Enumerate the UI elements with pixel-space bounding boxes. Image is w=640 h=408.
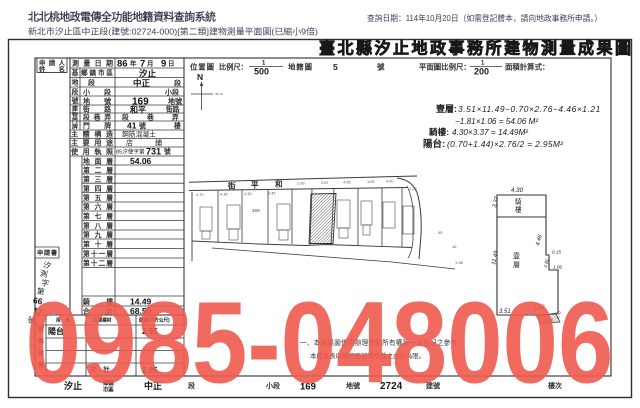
svg-text:基: 基 — [72, 68, 79, 77]
svg-text:日: 日 — [168, 60, 175, 68]
svg-text:壹: 壹 — [513, 251, 520, 260]
svg-text:街路: 街路 — [166, 105, 180, 114]
svg-text:年: 年 — [130, 59, 137, 68]
svg-text:樓: 樓 — [174, 121, 181, 130]
svg-text:86: 86 — [117, 59, 128, 70]
svg-text:第五層: 第五層 — [83, 193, 113, 202]
svg-text:鄉鎮市區: 鄉鎮市區 — [81, 68, 113, 77]
svg-text:731: 731 — [146, 147, 161, 157]
svg-text:(0.70+1.44)×2.76/2 = 2.95M²: (0.70+1.44)×2.76/2 = 2.95M² — [447, 139, 564, 149]
svg-text:中正: 中正 — [133, 78, 151, 88]
svg-text:地籍圖: 地籍圖 — [288, 63, 312, 72]
svg-text:段: 段 — [72, 87, 79, 96]
svg-text:54.06: 54.06 — [130, 156, 152, 166]
svg-text:地號: 地號 — [168, 97, 182, 106]
svg-text:弄: 弄 — [172, 114, 179, 122]
svg-text:段巷弄: 段巷弄 — [83, 113, 111, 122]
svg-text:169: 169 — [252, 208, 260, 213]
svg-text:4.30: 4.30 — [244, 191, 252, 196]
svg-text:9: 9 — [161, 59, 166, 70]
svg-text:比例尺：: 比例尺： — [219, 63, 248, 72]
svg-text:第二層: 第二層 — [83, 165, 113, 174]
svg-text:2.67: 2.67 — [321, 180, 329, 185]
svg-text:北北桃地政電傳全功能地籍資料查詢系統: 北北桃地政電傳全功能地籍資料查詢系統 — [28, 10, 216, 24]
svg-text:45: 45 — [438, 230, 443, 235]
svg-text:層: 層 — [513, 261, 520, 269]
svg-text:4.00: 4.00 — [386, 179, 394, 184]
svg-text:號: 號 — [72, 96, 79, 105]
svg-text:新北市汐止區中正段(建號:02724-000)[第二類]建物: 新北市汐止區中正段(建號:02724-000)[第二類]建物測量平面圖(已縮小9… — [28, 26, 318, 37]
svg-text:1.05: 1.05 — [367, 179, 375, 184]
svg-text:4.70: 4.70 — [196, 192, 204, 197]
svg-text:汐止: 汐止 — [139, 69, 157, 79]
svg-text:第八層: 第八層 — [83, 221, 113, 230]
svg-text:16: 16 — [452, 244, 457, 249]
svg-text:店: 店 — [126, 138, 133, 147]
svg-text:4.35: 4.35 — [220, 192, 228, 197]
svg-text:騎: 騎 — [515, 197, 522, 206]
svg-text:4.30: 4.30 — [511, 187, 524, 194]
svg-text:壹層:: 壹層: — [436, 103, 457, 114]
svg-text:第十二層: 第十二層 — [83, 259, 113, 268]
svg-text:查詢日期：114年10月20日（如需登記謄本，請向地政事務所: 查詢日期：114年10月20日（如需登記謄本，請向地政事務所申請。） — [367, 13, 602, 23]
svg-text:第七層: 第七層 — [83, 212, 113, 221]
svg-text:第六層: 第六層 — [83, 202, 113, 211]
svg-text:5: 5 — [333, 62, 338, 72]
svg-text:3.51×11.49−0.70×2.76−4.46×1.21: 3.51×11.49−0.70×2.76−4.46×1.21 — [458, 104, 601, 114]
svg-text:地: 地 — [72, 78, 79, 87]
svg-text:0.15: 0.15 — [552, 250, 561, 255]
svg-text:第十一層: 第十一層 — [83, 249, 113, 258]
svg-text:N: N — [197, 72, 203, 82]
svg-text:巷: 巷 — [147, 114, 154, 122]
svg-text:陽台:: 陽台: — [423, 138, 445, 150]
svg-text:號: 號 — [164, 147, 171, 156]
svg-text:41: 41 — [127, 121, 137, 131]
svg-text:4.05: 4.05 — [343, 180, 351, 185]
svg-text:物: 物 — [72, 111, 78, 119]
svg-text:樓: 樓 — [515, 205, 522, 214]
svg-text:位置圖: 位置圖 — [190, 63, 214, 72]
svg-text:500: 500 — [254, 67, 269, 77]
svg-text:申請人: 申請人 — [39, 58, 66, 67]
svg-text:鋼筋混凝土: 鋼筋混凝土 — [122, 130, 156, 139]
svg-text:−1.81×1.06 = 54.06 M²: −1.81×1.06 = 54.06 M² — [455, 117, 538, 126]
svg-text:號: 號 — [377, 63, 385, 72]
svg-text:平面圖比例尺：: 平面圖比例尺： — [419, 63, 471, 72]
svg-text:1.98: 1.98 — [455, 260, 464, 265]
svg-text:段: 段 — [174, 79, 181, 88]
svg-text:小段: 小段 — [165, 88, 179, 97]
svg-text:平: 平 — [251, 181, 259, 190]
svg-text:建: 建 — [72, 105, 78, 113]
svg-text:騎樓:: 騎樓: — [429, 126, 449, 137]
svg-text:200: 200 — [474, 67, 489, 77]
svg-text:街: 街 — [228, 181, 236, 191]
svg-text:臺北縣汐止地政事務所建物測量成果圖: 臺北縣汐止地政事務所建物測量成果圖 — [319, 39, 631, 58]
svg-text:0985-048006: 0985-048006 — [26, 278, 614, 408]
svg-text:地面層: 地面層 — [83, 156, 113, 165]
svg-text:4.30×3.37 = 14.49M²: 4.30×3.37 = 14.49M² — [452, 128, 528, 137]
svg-text:姓 名: 姓 名 — [39, 65, 65, 74]
svg-text:牌: 牌 — [72, 123, 78, 131]
svg-text:1.06: 1.06 — [553, 265, 562, 270]
svg-text:第四層: 第四層 — [83, 184, 113, 193]
svg-text:門: 門 — [72, 118, 78, 125]
svg-text:申請書: 申請書 — [37, 249, 57, 257]
svg-text:第三層: 第三層 — [83, 175, 113, 184]
svg-text:和: 和 — [275, 180, 283, 189]
svg-text:第九層: 第九層 — [83, 230, 113, 239]
svg-text:2.09: 2.09 — [297, 181, 305, 186]
svg-text:段: 段 — [88, 78, 95, 87]
svg-text:月: 月 — [147, 60, 154, 68]
svg-text:面積計算式：: 面積計算式： — [505, 63, 549, 72]
svg-text:號: 號 — [139, 121, 146, 130]
svg-text:85汐使字第: 85汐使字第 — [116, 148, 145, 156]
svg-text:和平: 和平 — [130, 105, 146, 115]
svg-text:第十層: 第十層 — [83, 240, 113, 249]
svg-text:2.45: 2.45 — [268, 191, 276, 196]
